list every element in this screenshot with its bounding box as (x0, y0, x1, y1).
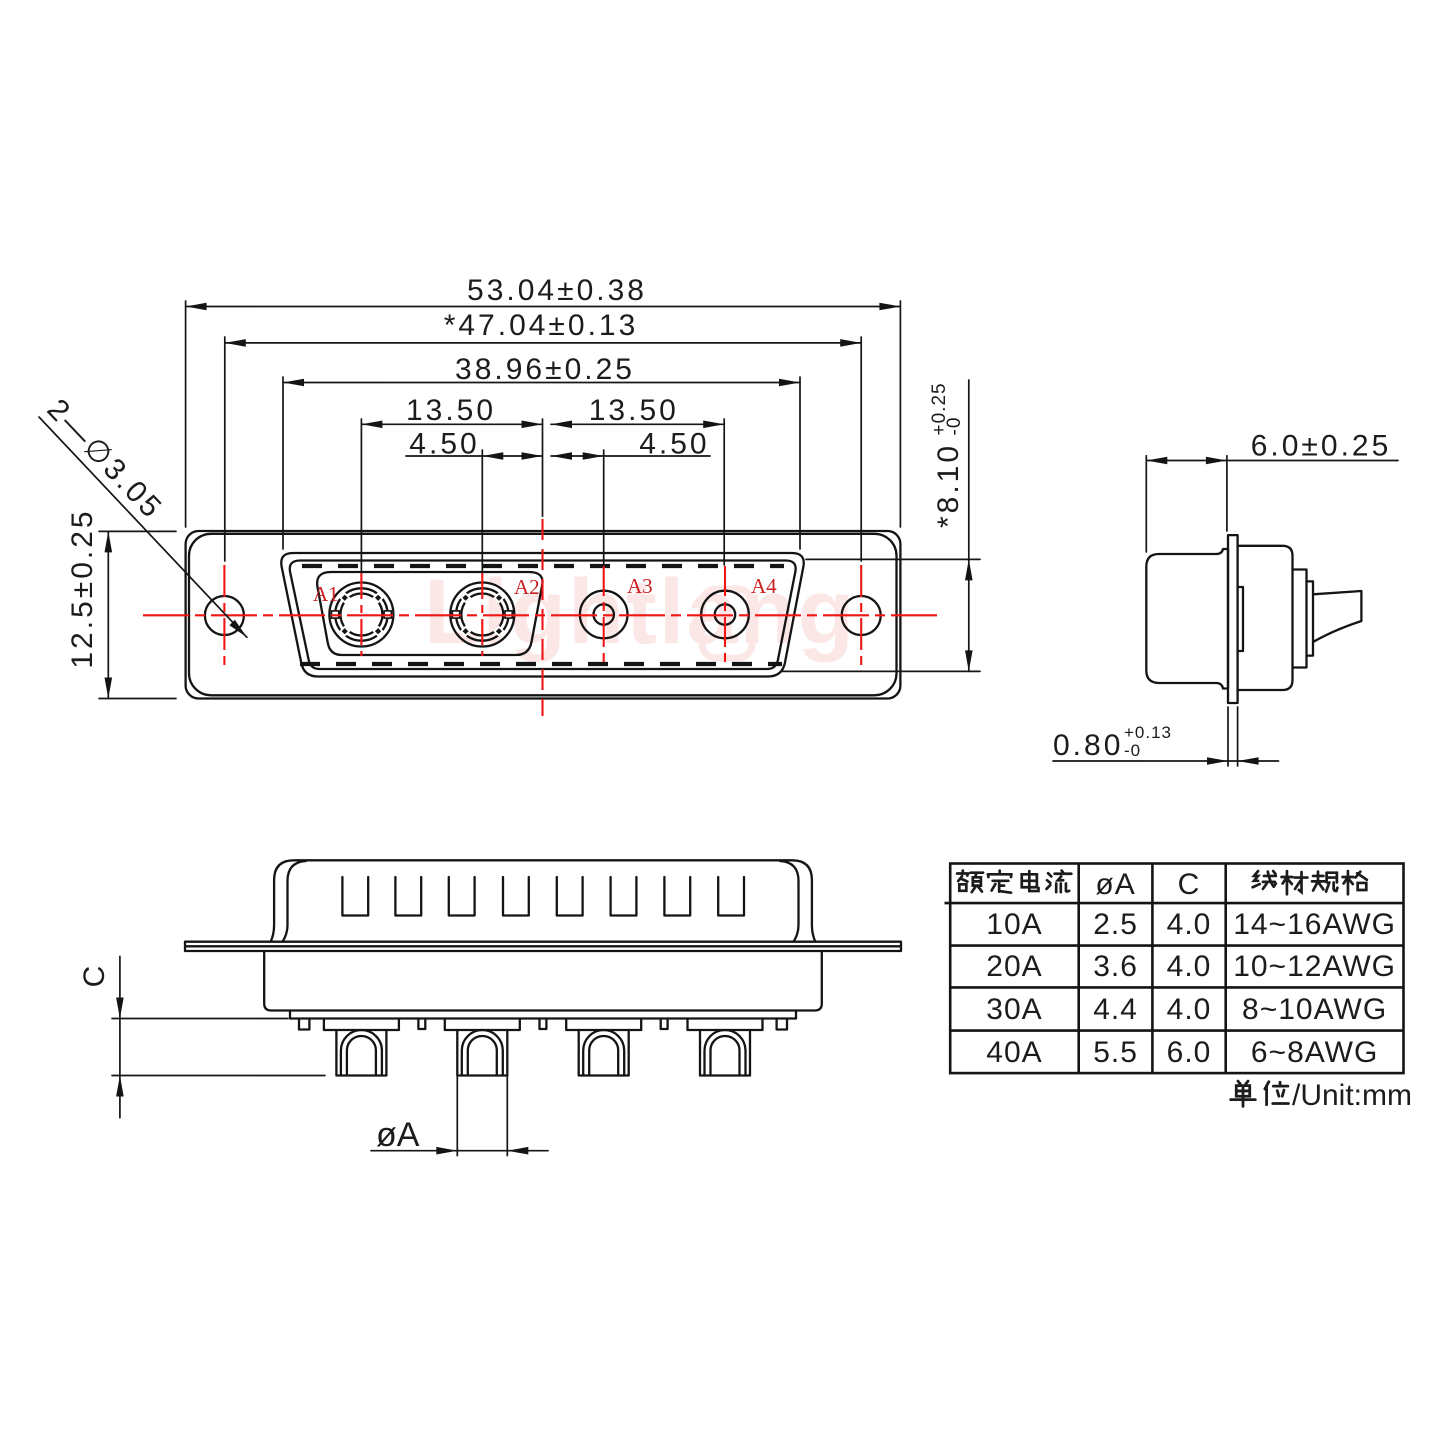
svg-text:A3: A3 (627, 574, 653, 598)
svg-text:13.50: 13.50 (589, 394, 679, 427)
svg-text:øA: øA (1095, 868, 1135, 901)
svg-text:5.5: 5.5 (1093, 1036, 1138, 1069)
svg-text:38.96±0.25: 38.96±0.25 (455, 353, 635, 386)
svg-text:A1: A1 (313, 582, 339, 606)
svg-text:øA: øA (376, 1116, 420, 1154)
svg-text:-0: -0 (1124, 741, 1141, 760)
svg-text:40A: 40A (986, 1036, 1042, 1069)
svg-text:53.04±0.38: 53.04±0.38 (467, 274, 647, 307)
svg-text:+0.13: +0.13 (1124, 723, 1172, 742)
svg-text:20A: 20A (986, 950, 1042, 983)
svg-text:4.50: 4.50 (639, 428, 709, 461)
svg-text:4.0: 4.0 (1167, 908, 1212, 941)
svg-text:0.80: 0.80 (1053, 729, 1123, 762)
svg-text:13.50: 13.50 (406, 394, 496, 427)
svg-text:8~10AWG: 8~10AWG (1242, 993, 1387, 1026)
svg-text:*8.10: *8.10 (932, 443, 965, 528)
svg-text:2.5: 2.5 (1093, 908, 1138, 941)
svg-text:2—∅3.05: 2—∅3.05 (41, 393, 170, 526)
svg-text:6.0: 6.0 (1167, 1036, 1212, 1069)
svg-text:14~16AWG: 14~16AWG (1233, 908, 1396, 941)
svg-text:A4: A4 (751, 574, 777, 598)
svg-text:C: C (78, 963, 111, 988)
svg-text:6~8AWG: 6~8AWG (1251, 1036, 1378, 1069)
svg-text:10~12AWG: 10~12AWG (1233, 950, 1396, 983)
svg-text:C: C (1178, 868, 1201, 901)
svg-text:3.6: 3.6 (1093, 950, 1138, 983)
svg-text:10A: 10A (986, 908, 1042, 941)
svg-text:4.4: 4.4 (1093, 993, 1138, 1026)
svg-text:-0: -0 (944, 417, 965, 436)
svg-text:*47.04±0.13: *47.04±0.13 (444, 309, 639, 342)
svg-text:12.5±0.25: 12.5±0.25 (66, 508, 99, 668)
svg-text:4.0: 4.0 (1167, 993, 1212, 1026)
svg-text:/Unit:mm: /Unit:mm (1292, 1079, 1412, 1112)
svg-text:4.50: 4.50 (409, 428, 479, 461)
svg-text:30A: 30A (986, 993, 1042, 1026)
svg-text:A2: A2 (514, 575, 540, 599)
svg-text:6.0±0.25: 6.0±0.25 (1251, 430, 1392, 463)
svg-text:4.0: 4.0 (1167, 950, 1212, 983)
